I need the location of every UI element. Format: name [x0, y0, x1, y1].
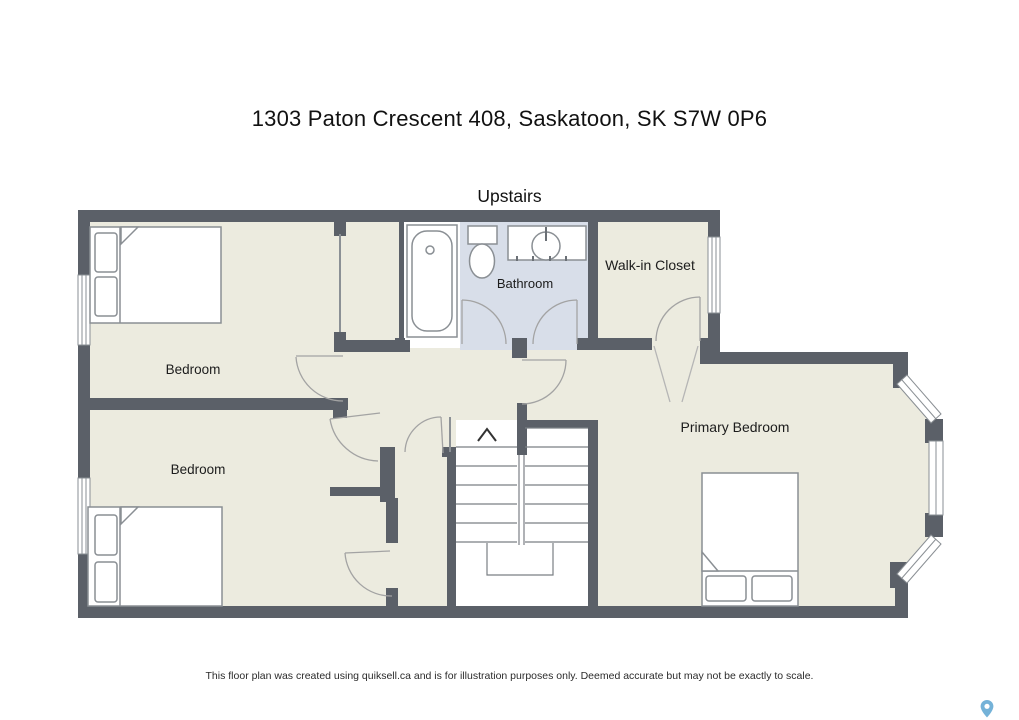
wall-bathroom-west	[399, 222, 404, 348]
wall-stair-left	[447, 452, 456, 606]
bed-primary	[702, 473, 798, 606]
wall-stub-top	[334, 222, 346, 236]
label-primary-bedroom: Primary Bedroom	[681, 419, 790, 435]
sink-vanity	[508, 226, 586, 261]
wall-closet-south-nub	[700, 338, 720, 364]
wall-bay-corner-2	[925, 419, 943, 443]
wall-top	[78, 210, 720, 222]
wall-stair-right	[588, 420, 598, 606]
wall-closet-south	[588, 338, 652, 350]
bed-bedroom-top	[90, 227, 221, 323]
wall-bedroom-divider	[90, 398, 348, 410]
wall-northeast	[708, 352, 905, 364]
label-bedroom-top: Bedroom	[166, 362, 221, 377]
label-walk-in-closet: Walk-in Closet	[605, 257, 695, 273]
location-pin-icon	[976, 697, 998, 720]
window-bay-middle	[929, 441, 943, 515]
floor-plan: Bedroom Bedroom Bathroom Walk-in Closet …	[0, 0, 1019, 720]
window-bedroom-top	[78, 275, 90, 345]
label-bedroom-bottom: Bedroom	[171, 462, 226, 477]
wall-bathroom-south-stub	[512, 338, 527, 358]
floor-plan-page: 1303 Paton Crescent 408, Saskatoon, SK S…	[0, 0, 1019, 720]
wall-bay-corner-3	[925, 513, 943, 537]
bathtub	[407, 225, 457, 337]
wall-bedroom2-east-c	[386, 588, 398, 606]
wall-bedroom2-closet	[330, 487, 388, 496]
tub-drain	[426, 246, 434, 254]
wall-bedroom2-east-b	[386, 498, 398, 543]
toilet	[468, 226, 497, 278]
wall-bottom	[78, 606, 908, 618]
wall-bathroom-east	[588, 222, 598, 350]
wall-bathroom-south-left	[395, 338, 405, 350]
wall-stair-top	[521, 420, 598, 428]
wall-divider-nub	[333, 403, 347, 418]
bed-bedroom-bottom	[88, 507, 222, 606]
window-walk-in-closet	[708, 237, 720, 313]
label-bathroom: Bathroom	[497, 276, 553, 291]
disclaimer-text: This floor plan was created using quikse…	[0, 670, 1019, 682]
